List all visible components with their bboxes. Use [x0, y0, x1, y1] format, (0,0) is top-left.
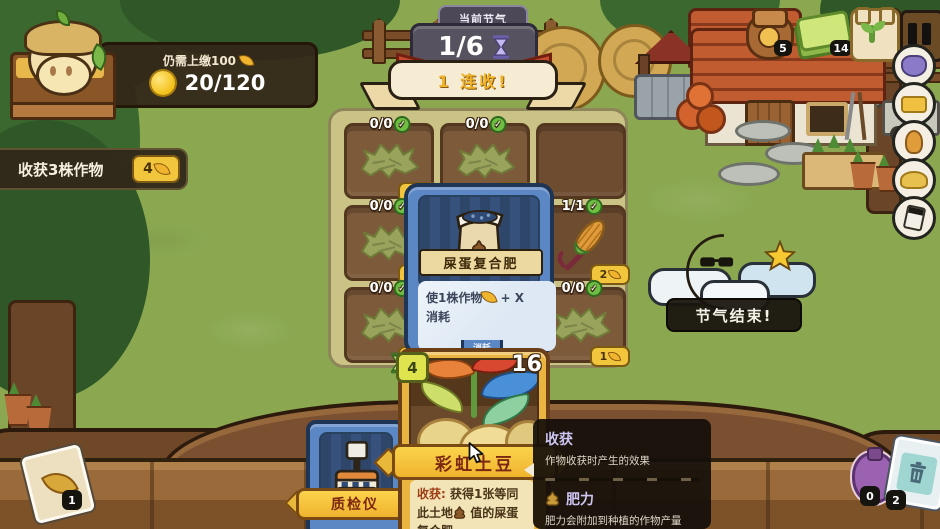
plant-tuft: [812, 138, 824, 152]
plant-tuft: [30, 394, 42, 408]
tooltip-divider: [545, 478, 699, 481]
plant-tuft: [8, 382, 20, 396]
tooltip-fertility-title-row: 肥力: [545, 489, 699, 509]
check-icon: ✓: [587, 200, 600, 213]
hourglass-icon: [492, 35, 510, 59]
fertilizer-card-name: 屎蛋复合肥: [419, 249, 543, 276]
coin-icon: [151, 71, 175, 95]
star-icon: [764, 240, 796, 272]
quest-panel[interactable]: 收获3株作物 4: [0, 148, 188, 190]
mouse-cursor: [466, 442, 484, 464]
leaf-card-count: 1: [62, 490, 82, 510]
mascot-crate[interactable]: [10, 36, 110, 112]
plot-progress: 0/0 ✓: [370, 281, 409, 296]
machine-name-ribbon: 质检仪: [296, 488, 414, 520]
plot-progress: 1/1 ✓: [562, 199, 601, 214]
check-icon: ✓: [491, 118, 504, 131]
season-progress: 1/6: [438, 32, 484, 62]
card-stack-button[interactable]: 14: [794, 12, 850, 58]
poop-icon: [545, 491, 560, 506]
hay-tuft: [550, 303, 612, 347]
plant-tuft: [852, 150, 864, 164]
hay-tuft: [454, 139, 516, 183]
pouch-count: 0: [860, 486, 880, 506]
path-stone: [735, 120, 791, 142]
trash-count: 2: [886, 490, 906, 510]
season-end-banner: 节气结束!: [666, 298, 802, 332]
check-icon: ✓: [395, 118, 408, 131]
plot-progress: 0/0 ✓: [466, 117, 505, 132]
fertilizer-card[interactable]: 屎蛋复合肥 使1株作物 + X 消耗 消耗: [404, 183, 554, 355]
quest-text: 收获3株作物: [18, 159, 103, 180]
sprout-leaf: [873, 21, 885, 31]
tooltip-harvest-title: 收获: [545, 429, 699, 449]
quest-reward-badge: 4: [132, 155, 180, 183]
potato-card-value: 16: [511, 352, 542, 377]
plot-progress: 0/0 ✓: [370, 117, 409, 132]
combo-banner: 1 连收!: [388, 60, 558, 100]
house-window: [806, 102, 848, 136]
potato-card-cost: 4: [396, 352, 429, 383]
tooltip-fertility-desc: 肥力会附加到种植的作物产量上，季节结束时重置: [545, 514, 699, 529]
tooltip-harvest-desc: 作物收获时产生的效果: [545, 454, 699, 470]
tooltip-arrow: [524, 463, 534, 477]
path-stone: [718, 162, 780, 186]
plant-tuft: [828, 134, 840, 148]
pouch-tie: [867, 447, 883, 461]
bag-flap: [752, 8, 788, 28]
pumpkin: [686, 82, 714, 110]
poop-icon: [453, 506, 466, 519]
leaf-icon: [153, 160, 170, 177]
trash-icon: [905, 459, 929, 486]
pig-nostril: [66, 66, 72, 76]
pig-snout: [36, 54, 92, 96]
tax-label: 仍需上缴100: [163, 52, 236, 69]
plant-tuft: [878, 154, 890, 168]
feed-bag-count: 5: [774, 40, 792, 56]
keyword-tooltip: 收获 作物收获时产生的效果 肥力 肥力会附加到种植的作物产量上，季节结束时重置: [533, 419, 711, 529]
card-stack-count: 14: [830, 40, 852, 56]
check-icon: ✓: [587, 282, 600, 295]
feed-bag-button[interactable]: 5: [742, 8, 792, 56]
tax-progress: 20/120: [185, 71, 266, 95]
seed-pack-button[interactable]: [850, 8, 900, 62]
plot-progress: 0/0 ✓: [370, 199, 409, 214]
game-scene: 0/0 ✓ 1 0/0 ✓ 1 0/0 ✓: [0, 0, 940, 529]
potato-card-desc: 收获: 获得1张等同此土地 值的屎蛋复合肥: [410, 480, 534, 529]
item-circle-fertilizer[interactable]: [892, 196, 936, 240]
plot-progress: 0/0 ✓: [562, 281, 601, 296]
hay-tuft: [358, 139, 420, 183]
potato-card[interactable]: 4 16 彩虹土豆 收获: 获得1张等同此土地 值的屎蛋复合肥: [398, 348, 550, 529]
tax-panel: 仍需上缴100 20/120: [98, 42, 318, 108]
fence-post: [372, 18, 386, 64]
leaf-icon: [481, 288, 498, 305]
plot-fertility-badge: 1: [590, 346, 630, 367]
leaf-icon: [239, 53, 255, 69]
pig-nostril: [50, 66, 56, 76]
